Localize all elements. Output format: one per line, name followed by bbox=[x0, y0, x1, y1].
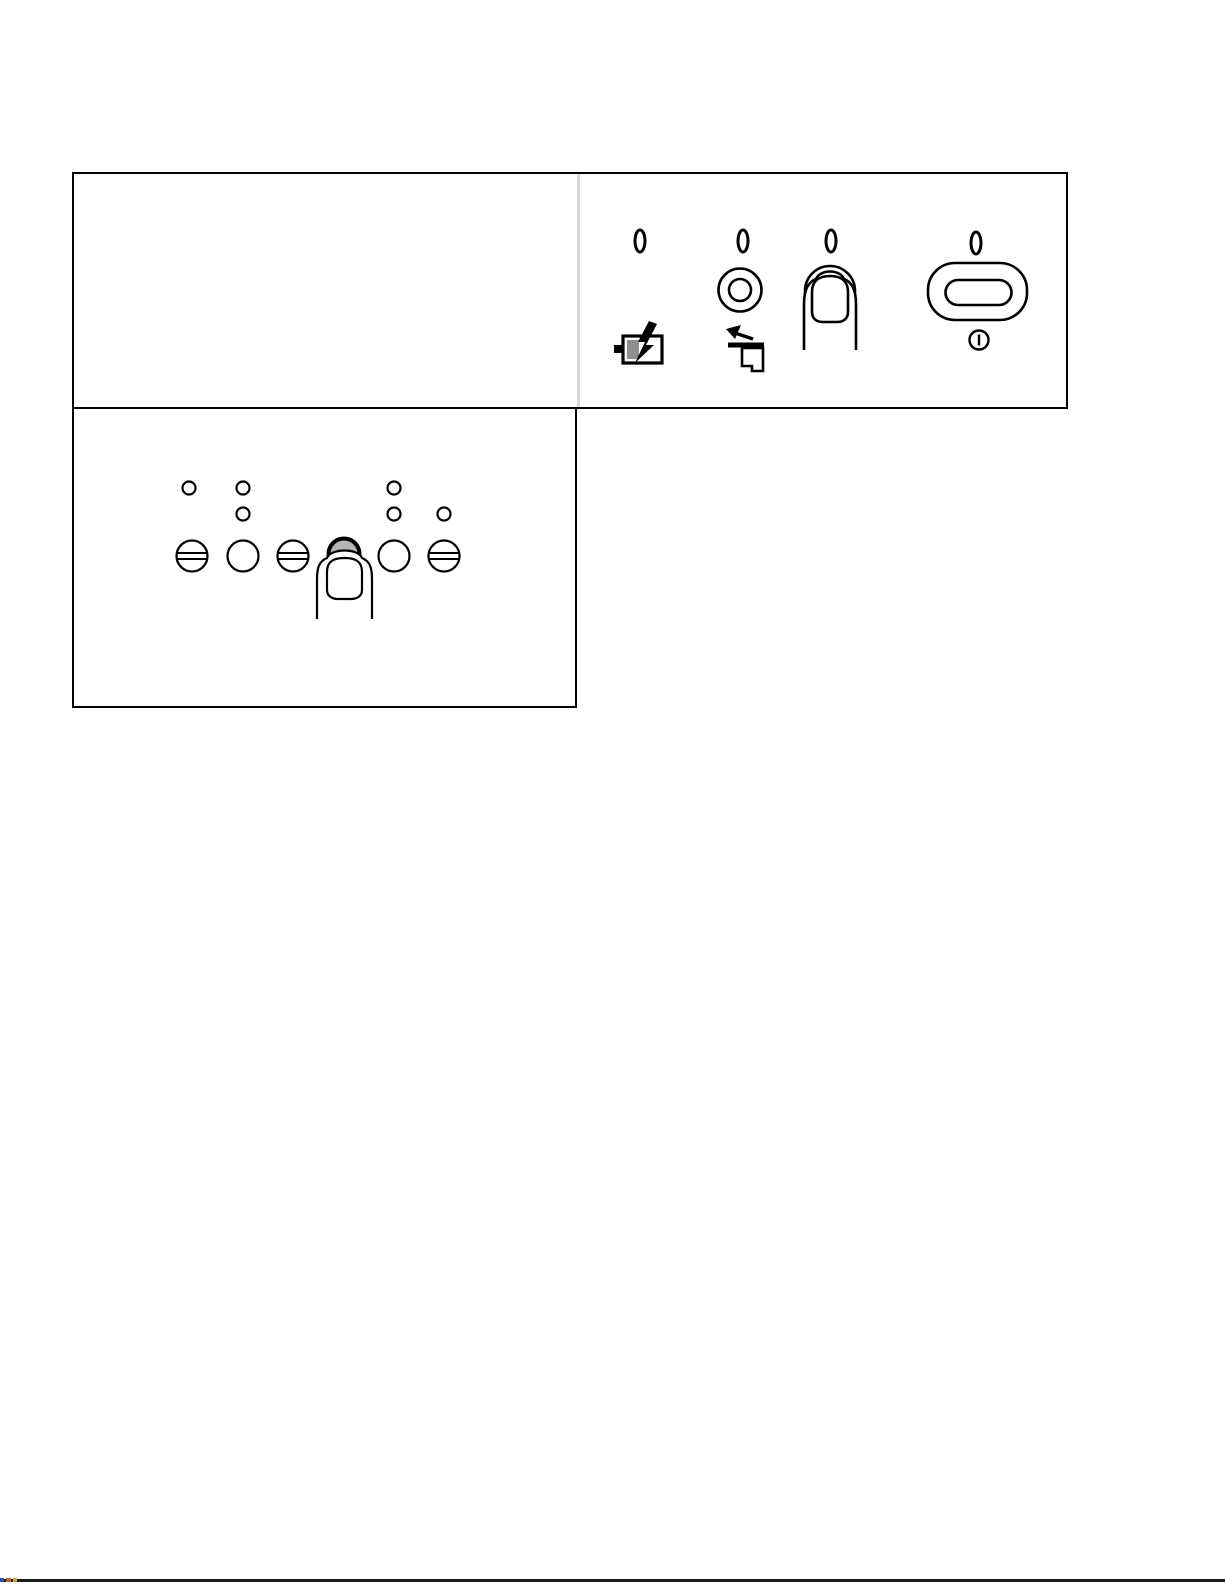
battery-charging-icon bbox=[614, 321, 662, 363]
fingernail bbox=[327, 558, 362, 599]
scan-artifact-line bbox=[0, 1579, 1225, 1582]
scan-artifact-mark bbox=[6, 1578, 11, 1582]
ring-button-inner bbox=[729, 279, 751, 301]
fingernail bbox=[812, 276, 848, 322]
indicator-led bbox=[388, 482, 401, 495]
indicator-led bbox=[237, 508, 250, 521]
power-symbol-icon bbox=[970, 331, 989, 350]
scan-artifact-mark bbox=[0, 1578, 4, 1582]
indicator-led bbox=[826, 230, 836, 252]
banded-button bbox=[429, 541, 460, 572]
indicator-led bbox=[438, 508, 451, 521]
plain-button bbox=[228, 541, 259, 572]
top-figure-frame bbox=[72, 172, 1068, 409]
scan-artifact-mark bbox=[13, 1578, 17, 1582]
indicator-led bbox=[738, 230, 748, 252]
pressing-finger bbox=[317, 551, 372, 620]
banded-button bbox=[177, 541, 208, 572]
indicator-led bbox=[971, 232, 981, 254]
power-button-inner bbox=[946, 280, 1012, 305]
banded-button bbox=[278, 541, 309, 572]
indicator-led bbox=[388, 508, 401, 521]
top-control-panel-figure bbox=[74, 174, 1066, 407]
pressing-finger bbox=[804, 272, 856, 351]
indicator-led bbox=[237, 482, 250, 495]
indicator-led bbox=[183, 482, 196, 495]
button-band-lines bbox=[177, 553, 459, 559]
bottom-control-panel-figure bbox=[74, 409, 575, 706]
battery-level-fill bbox=[627, 340, 639, 359]
plain-button bbox=[379, 541, 410, 572]
scanned-manual-page bbox=[0, 0, 1225, 1585]
film-eject-icon bbox=[726, 325, 764, 371]
bottom-figure-frame bbox=[72, 407, 577, 708]
indicator-led bbox=[635, 230, 645, 252]
